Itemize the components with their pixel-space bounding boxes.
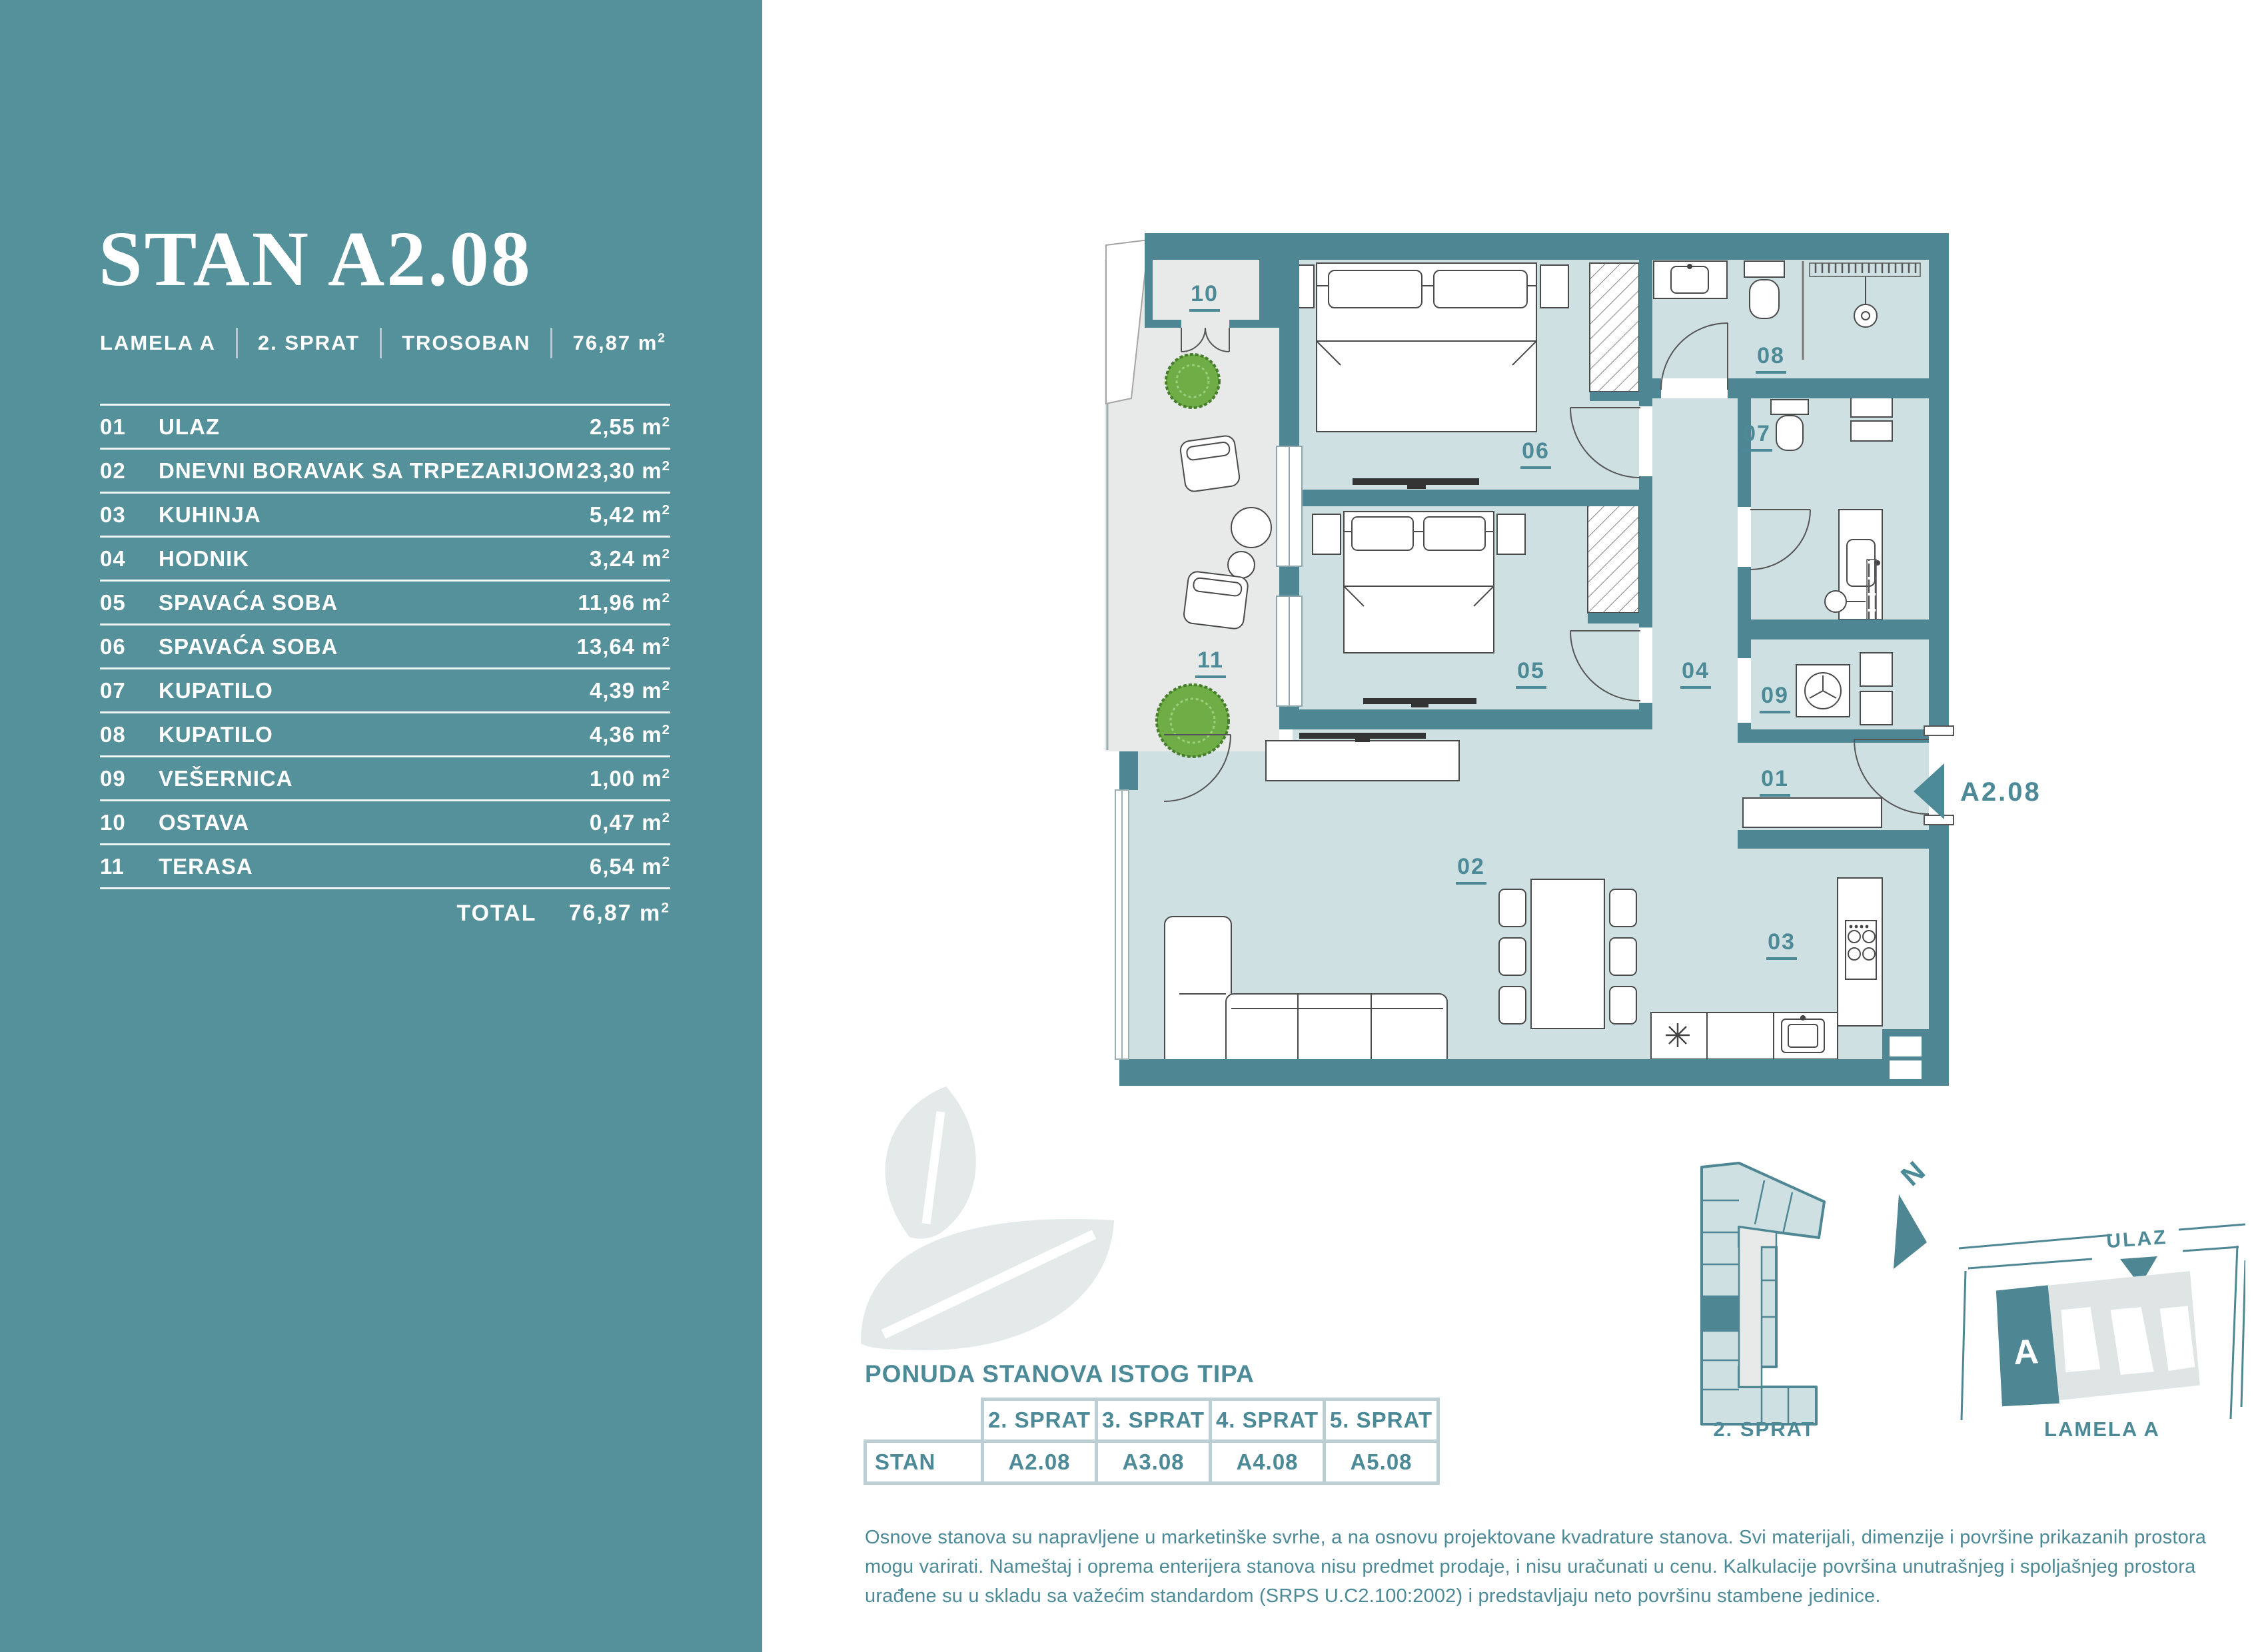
offer-value: A3.08 xyxy=(1097,1442,1211,1483)
meta-type: TROSOBAN xyxy=(402,331,530,355)
meta-divider xyxy=(550,328,552,358)
shaft xyxy=(1890,1060,1922,1079)
room-row: 07KUPATILO4,39 m2 xyxy=(100,669,670,713)
unit-marker-label: A2.08 xyxy=(1960,777,2041,807)
offer-title: PONUDA STANOVA ISTOG TIPA xyxy=(865,1360,1255,1388)
siteplan-caption: LAMELA A xyxy=(1992,1418,2212,1442)
room-row: 02DNEVNI BORAVAK SA TRPEZARIJOM23,30 m2 xyxy=(100,450,670,494)
room-list: 01ULAZ2,55 m2 02DNEVNI BORAVAK SA TRPEZA… xyxy=(100,404,670,937)
leaf-watermark-icon xyxy=(846,1082,1139,1362)
offer-value: A5.08 xyxy=(1325,1442,1438,1483)
total-value: 76,87 m2 xyxy=(568,900,670,926)
offer-row-label: STAN xyxy=(865,1442,983,1483)
window-band xyxy=(1115,790,1129,1059)
room-label-04: 04 xyxy=(1682,658,1710,683)
offer-col-header: 5. SPRAT xyxy=(1325,1400,1438,1442)
room-row: 11TERASA6,54 m2 xyxy=(100,845,670,889)
room-row: 06SPAVAĆA SOBA13,64 m2 xyxy=(100,625,670,669)
room-label-01: 01 xyxy=(1761,766,1789,791)
offer-col-header: 3. SPRAT xyxy=(1097,1400,1211,1442)
room-label-06: 06 xyxy=(1522,438,1550,464)
room-row: 03KUHINJA5,42 m2 xyxy=(100,494,670,538)
meta-divider xyxy=(380,328,382,358)
offer-col-header: 2. SPRAT xyxy=(983,1400,1097,1442)
floor-plan: 10 11 06 05 04 08 07 09 01 02 03 A2.08 xyxy=(1099,226,2072,1112)
apartment-meta: LAMELA A 2. SPRAT TROSOBAN 76,87 m2 xyxy=(100,328,666,358)
sidebar: STAN A2.08 LAMELA A 2. SPRAT TROSOBAN 76… xyxy=(0,0,762,1652)
room-row: 10OSTAVA0,47 m2 xyxy=(100,801,670,845)
compass-icon: N xyxy=(1874,1156,1954,1276)
door-frame xyxy=(1924,815,1954,825)
total-label: TOTAL xyxy=(456,901,536,927)
total-row: TOTAL 76,87 m2 xyxy=(100,889,670,937)
entrance-01-fixtures xyxy=(1743,798,1882,827)
minimap-caption: 2. SPRAT xyxy=(1698,1418,1831,1442)
room-label-03: 03 xyxy=(1768,929,1796,955)
door-frame xyxy=(1924,726,1954,735)
offer-data-row: STAN A2.08 A3.08 A4.08 A5.08 xyxy=(865,1442,1438,1483)
highlighted-unit xyxy=(1702,1296,1739,1331)
site-plan: ULAZ A xyxy=(1959,1207,2245,1427)
offer-value: A4.08 xyxy=(1211,1442,1325,1483)
room-row: 09VEŠERNICA1,00 m2 xyxy=(100,757,670,801)
room-label-05: 05 xyxy=(1517,658,1545,683)
room-label-11: 11 xyxy=(1197,647,1224,673)
room-row: 04HODNIK3,24 m2 xyxy=(100,538,670,582)
room-label-09: 09 xyxy=(1761,683,1789,708)
compass-n-label: N xyxy=(1895,1156,1931,1192)
shaft xyxy=(1890,1036,1922,1056)
page-title: STAN A2.08 xyxy=(99,220,532,298)
offer-header-row: 2. SPRAT 3. SPRAT 4. SPRAT 5. SPRAT xyxy=(865,1400,1438,1442)
entrance-label: ULAZ xyxy=(2105,1226,2168,1252)
room-row: 05SPAVAĆA SOBA11,96 m2 xyxy=(100,582,670,625)
room-row: 01ULAZ2,55 m2 xyxy=(100,406,670,450)
room-label-10: 10 xyxy=(1191,281,1219,306)
room-row: 08KUPATILO4,36 m2 xyxy=(100,713,670,757)
meta-area: 76,87 m2 xyxy=(572,331,666,355)
offer-blank-cell xyxy=(865,1400,983,1442)
brochure-page: STAN A2.08 LAMELA A 2. SPRAT TROSOBAN 76… xyxy=(0,0,2264,1652)
meta-floor: 2. SPRAT xyxy=(258,331,360,355)
offer-table: 2. SPRAT 3. SPRAT 4. SPRAT 5. SPRAT STAN… xyxy=(863,1398,1440,1485)
offer-col-header: 4. SPRAT xyxy=(1211,1400,1325,1442)
disclaimer-text: Osnove stanova su napravljene u marketin… xyxy=(865,1523,2232,1611)
meta-lamela: LAMELA A xyxy=(100,331,216,355)
building-a-label: A xyxy=(2013,1332,2040,1372)
room-label-08: 08 xyxy=(1757,343,1785,368)
offer-value: A2.08 xyxy=(983,1442,1097,1483)
floor-minimap xyxy=(1698,1160,1831,1427)
room-label-02: 02 xyxy=(1457,854,1485,879)
room-label-07: 07 xyxy=(1743,421,1771,446)
meta-divider xyxy=(236,328,238,358)
